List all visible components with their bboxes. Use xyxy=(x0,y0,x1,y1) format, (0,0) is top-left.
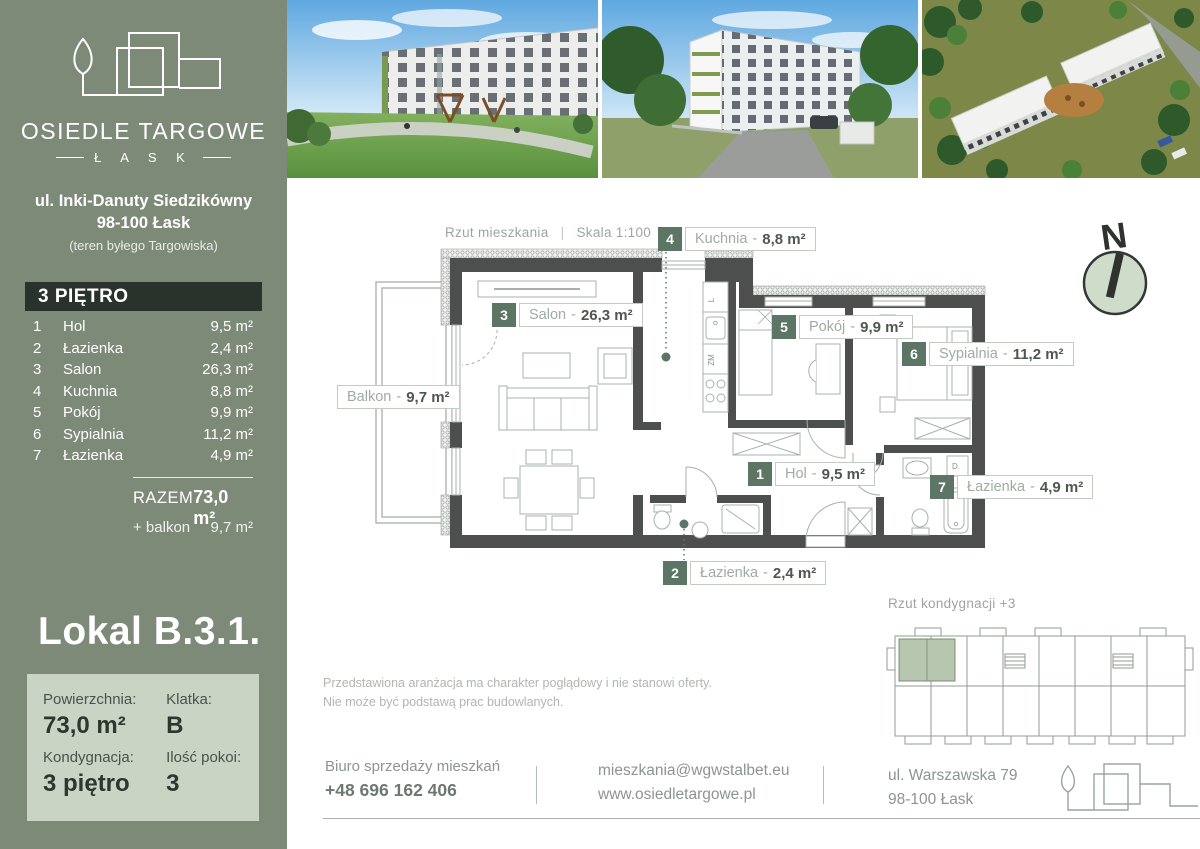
room-label-sypialnia: 6 Sypialnia - 11,2 m² xyxy=(902,342,1074,366)
table-row: 1 Hol 9,5 m² xyxy=(25,316,253,338)
estate-address-street: ul. Inki-Danuty Siedzikówny xyxy=(0,192,287,211)
overview-caption: Rzut kondygnacji +3 xyxy=(888,596,1016,611)
unit-rooms: Ilość pokoi: 3 xyxy=(166,749,259,807)
company-street: ul. Warszawska 79 xyxy=(888,767,1018,785)
photo-courtyard-playground-image xyxy=(287,0,598,178)
unit-area: Powierzchnia: 73,0 m² xyxy=(43,691,166,749)
footer-office: Biuro sprzedaży mieszkań +48 696 162 406 xyxy=(325,758,500,801)
room-label-salon: 3 Salon - 26,3 m² xyxy=(492,303,643,327)
footer-logo xyxy=(1048,758,1198,820)
washer-label: D. xyxy=(952,462,960,471)
room-label-lazienka-2: 2 Łazienka - 2,4 m² xyxy=(663,561,826,585)
photo-courtyard-playground xyxy=(287,0,598,178)
brand-city: Ł A S K xyxy=(0,150,287,165)
unit-info-box: Powierzchnia: 73,0 m² Klatka: B Kondygna… xyxy=(27,674,259,821)
building-overview-plan xyxy=(885,618,1195,758)
photo-aerial-estate xyxy=(922,0,1200,178)
phone-number: +48 696 162 406 xyxy=(325,780,500,801)
table-row: 7 Łazienka 4,9 m² xyxy=(25,445,253,467)
disclaimer: Przedstawiona aranżacja ma charakter pog… xyxy=(323,674,712,713)
footer-divider-1 xyxy=(536,766,537,804)
dash-right xyxy=(203,157,231,158)
table-row: 6 Sypialnia 11,2 m² xyxy=(25,424,253,446)
room-label-pokoj: 5 Pokój - 9,9 m² xyxy=(772,315,913,339)
table-row: 2 Łazienka 2,4 m² xyxy=(25,338,253,360)
sidebar: OSIEDLE TARGOWE Ł A S K ul. Inki-Danuty … xyxy=(0,0,287,849)
footer-divider-2 xyxy=(823,766,824,804)
dishwasher-label: ZM xyxy=(707,354,716,366)
photo-aerial-estate-image xyxy=(922,0,1200,178)
photo-building-street xyxy=(602,0,918,178)
room-label-balkon: Balkon - 9,7 m² xyxy=(337,385,460,409)
table-row: 3 Salon 26,3 m² xyxy=(25,359,253,381)
balcony-row: + balkon 9,7 m² xyxy=(133,519,253,536)
room-label-hol: 1 Hol - 9,5 m² xyxy=(748,462,875,486)
floor-plan: L ZM D. xyxy=(330,212,1075,617)
flyer-page: OSIEDLE TARGOWE Ł A S K ul. Inki-Danuty … xyxy=(0,0,1200,849)
email-address: mieszkania@wgwstalbet.eu xyxy=(598,762,790,780)
room-label-lazienka-7: 7 Łazienka - 4,9 m² xyxy=(930,475,1093,499)
dash-left xyxy=(56,157,84,158)
company-city: 98-100 Łask xyxy=(888,791,1018,809)
unit-staircase: Klatka: B xyxy=(166,691,259,749)
table-row: 4 Kuchnia 8,8 m² xyxy=(25,381,253,403)
compass-icon: N xyxy=(1075,205,1157,320)
room-label-kuchnia: 4 Kuchnia - 8,8 m² xyxy=(658,227,816,251)
unit-storey: Kondygnacja: 3 piętro xyxy=(43,749,166,807)
estate-address-city: 98-100 Łask xyxy=(0,214,287,233)
footer-address: ul. Warszawska 79 98-100 Łask xyxy=(888,761,1018,809)
brand-name: OSIEDLE TARGOWE xyxy=(0,118,287,145)
website-url: www.osiedletargowe.pl xyxy=(598,786,790,804)
office-label: Biuro sprzedaży mieszkań xyxy=(325,758,500,775)
fridge-label: L xyxy=(707,297,716,302)
room-table: 1 Hol 9,5 m² 2 Łazienka 2,4 m² 3 Salon 2… xyxy=(25,316,253,467)
table-row: 5 Pokój 9,9 m² xyxy=(25,402,253,424)
brand-logo xyxy=(55,26,233,108)
unit-title: Lokal B.3.1. xyxy=(38,610,261,654)
photo-building-street-image xyxy=(602,0,918,178)
footer-web: mieszkania@wgwstalbet.eu www.osiedletarg… xyxy=(598,756,790,804)
table-divider xyxy=(133,477,253,478)
floor-table-header: 3 PIĘTRO xyxy=(25,282,262,311)
estate-address-note: (teren byłego Targowiska) xyxy=(0,238,287,253)
